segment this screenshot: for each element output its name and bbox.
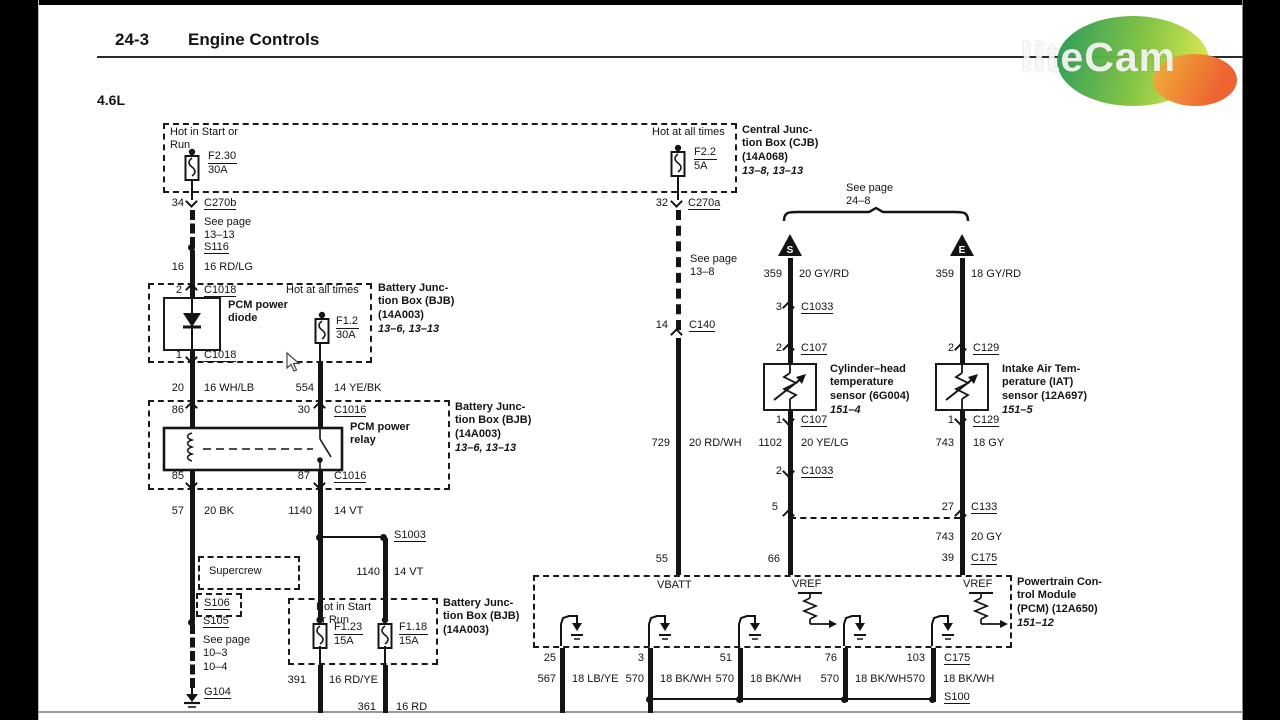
pcm-ground-icon: [736, 612, 764, 646]
pin-1: 1: [766, 414, 782, 427]
pcm-ground-icon: [929, 612, 957, 646]
pcm-ground-icon: [646, 612, 674, 646]
connector-name: C107: [801, 414, 827, 427]
fuse-name: F1.2: [336, 315, 359, 329]
wire-color-18gy: 18 GY: [973, 437, 1004, 450]
iat-sensor-label: Intake Air Tem- perature (IAT) sensor (1…: [1002, 363, 1087, 403]
engine-label: 4.6L: [97, 92, 125, 109]
see-page-24-8: See page 24–8: [846, 182, 893, 209]
pcm-power-diode-label: PCM power diode: [228, 299, 288, 326]
junction-dot: [841, 696, 848, 703]
see-page-13-8: See page 13–8: [690, 253, 737, 280]
circuit-361: 361: [342, 701, 376, 714]
connector-name: C129: [973, 414, 999, 427]
connector-name: C270a: [688, 197, 720, 210]
bjb2-pages: 13–6, 13–13: [455, 442, 516, 455]
cjb-box: [163, 123, 737, 193]
fuse-name: F1.23: [334, 621, 363, 635]
thermistor-icon: [935, 363, 989, 411]
ground-g104: G104: [204, 686, 231, 699]
wiring-diagram-page: 24-3 Engine Controls 4.6L liteCam Hot in…: [0, 0, 1280, 720]
connector-name: C1018: [204, 284, 236, 297]
connector-c129-top: C129: [973, 342, 999, 355]
pin-2: 2: [164, 284, 182, 297]
fuse-rating: 30A: [208, 164, 228, 176]
pin-103: 103: [891, 652, 925, 665]
connector-arrow-down: [670, 195, 683, 208]
pcm-label: Powertrain Con- trol Module (PCM) (12A65…: [1017, 576, 1102, 616]
wire-segment-dashed: [190, 210, 195, 247]
circuit-743b: 743: [920, 531, 954, 544]
wire-segment: [788, 411, 793, 575]
wire-color-20bk: 20 BK: [204, 505, 234, 518]
right-letterbox-bar: [1243, 0, 1280, 720]
page-right-edge: [1242, 0, 1243, 720]
connector-name: C1016: [334, 404, 366, 417]
fuse-f22-label: F2.2 5A: [694, 146, 717, 172]
junction-dot: [736, 696, 743, 703]
pcm-page: 151–12: [1017, 617, 1054, 630]
fuse-f123-label: F1.23 15A: [334, 621, 363, 647]
page-title: Engine Controls: [188, 30, 319, 51]
fuse-rating: 5A: [694, 160, 707, 172]
circuit-1102: 1102: [748, 437, 782, 450]
fuse-name: F2.2: [694, 146, 717, 160]
pin-1: 1: [938, 414, 954, 427]
circuit-570a: 570: [608, 673, 644, 686]
wire-color-16rd: 16 RD: [396, 701, 427, 714]
wire-segment: [676, 338, 681, 575]
cht-sensor-page: 151–4: [830, 404, 861, 417]
circuit-570b: 570: [698, 673, 734, 686]
circuit-570d: 570: [889, 673, 925, 686]
wire-segment: [843, 648, 848, 702]
fuse-name: F2.30: [208, 150, 237, 164]
connector-c1033-top: C1033: [801, 301, 833, 314]
pin-87: 87: [286, 470, 310, 483]
splice-s1003: S1003: [394, 529, 426, 542]
wire-segment: [190, 471, 195, 621]
pin-2: 2: [938, 342, 954, 355]
circuit-16: 16: [160, 261, 184, 274]
wire-segment: [318, 471, 323, 618]
pcm-vbatt-label: VBATT: [657, 579, 692, 592]
ground-name: G104: [204, 686, 231, 699]
circuit-57: 57: [160, 505, 184, 518]
connector-c1018-bottom: C1018: [204, 349, 236, 362]
fuse-f22-icon: [670, 144, 686, 178]
circuit-554: 554: [284, 382, 314, 395]
pcm-ground-icon: [841, 612, 869, 646]
pin-27: 27: [920, 501, 954, 514]
splice-s106: S106: [204, 597, 230, 610]
connector-name: C133: [971, 501, 997, 514]
wire-segment: [319, 646, 321, 665]
wire-color-20yelg: 20 YE/LG: [801, 437, 849, 450]
circuit-20: 20: [160, 382, 184, 395]
mouse-cursor: [286, 352, 300, 372]
wire-color-14vt-b: 14 VT: [394, 566, 423, 579]
splice-name: S105: [203, 615, 229, 628]
cjb-pages: 13–8, 13–13: [742, 165, 803, 178]
connector-c140: C140: [689, 319, 715, 332]
junction-dot: [646, 696, 653, 703]
arrow-letter-s: S: [783, 245, 797, 256]
pin-34: 34: [160, 197, 184, 210]
pin-85: 85: [164, 470, 184, 483]
connector-name: C107: [801, 342, 827, 355]
circuit-567: 567: [520, 673, 556, 686]
wire-segment-dashed: [190, 624, 195, 688]
cjb-left-condition: Hot in Start or Run: [170, 126, 238, 153]
fuse-rating: 15A: [399, 635, 419, 647]
connector-c175-top: C175: [971, 552, 997, 565]
connector-arrow-down: [185, 195, 198, 208]
connector-name: C1033: [801, 465, 833, 478]
circuit-743a: 743: [920, 437, 954, 450]
wire-segment: [560, 648, 565, 713]
splice-name: S100: [944, 691, 970, 704]
bjb2-label: Battery Junc- tion Box (BJB) (14A003): [455, 401, 531, 441]
iat-sensor-page: 151–5: [1002, 404, 1033, 417]
splice-name: S106: [204, 597, 230, 610]
pin-14: 14: [646, 319, 668, 332]
junction-dot: [929, 696, 936, 703]
s100-bus-line: [650, 698, 933, 700]
connector-name: C1018: [204, 349, 236, 362]
connector-name: C175: [971, 552, 997, 565]
connector-c107-top: C107: [801, 342, 827, 355]
pin-66: 66: [756, 553, 780, 566]
fuse-f230-icon: [184, 148, 200, 182]
pin-1: 1: [164, 349, 182, 362]
relay-icon: [163, 427, 343, 471]
fuse-name: F1.18: [399, 621, 428, 635]
bracket: [783, 206, 969, 222]
connector-c1016-top: C1016: [334, 404, 366, 417]
splice-s105: S105: [203, 615, 229, 628]
circuit-359: 359: [750, 268, 782, 281]
wire-color-20rdwh: 20 RD/WH: [689, 437, 742, 450]
left-letterbox-bar: [0, 0, 38, 720]
see-page-10: See page 10–3 10–4: [203, 634, 250, 674]
pin-76: 76: [805, 652, 837, 665]
fuse-f12-icon: [314, 311, 330, 345]
connector-name: C270b: [204, 197, 236, 210]
pin-25: 25: [524, 652, 556, 665]
wire-segment: [931, 648, 936, 702]
connector-c1018-top: C1018: [204, 284, 236, 297]
connector-name: C1033: [801, 301, 833, 314]
pin-30: 30: [286, 404, 310, 417]
wire-color-14vt: 14 VT: [334, 505, 363, 518]
thermistor-icon: [763, 363, 817, 411]
litecam-logo-text: liteCam: [1021, 34, 1235, 81]
supercrew-label: Supercrew: [209, 565, 262, 578]
bjb1-pages: 13–6, 13–13: [378, 323, 439, 336]
connector-c270b: C270b: [204, 197, 236, 210]
cjb-label: Central Junc- tion Box (CJB) (14A068): [742, 124, 818, 164]
page-left-edge: [38, 0, 39, 720]
arrow-letter-e: E: [955, 245, 969, 256]
connector-c1016-bottom: C1016: [334, 470, 366, 483]
splice-s116: S116: [204, 241, 229, 254]
pin-32: 32: [646, 197, 668, 210]
connector-name: C140: [689, 319, 715, 332]
wire-segment: [960, 411, 965, 575]
cht-sensor-label: Cylinder–head temperature sensor (6G004): [830, 363, 909, 403]
connector-name: C1016: [334, 470, 366, 483]
fuse-f12-label: F1.2 30A: [336, 315, 359, 341]
cjb-right-condition: Hot at all times: [652, 126, 725, 139]
pin-3: 3: [612, 652, 644, 665]
wire-segment: [384, 646, 386, 665]
connector-c1033-bottom: C1033: [801, 465, 833, 478]
wire-segment: [318, 665, 323, 713]
wire-color-18bkwh-d: 18 BK/WH: [943, 673, 994, 686]
fuse-f230-label: F2.30 30A: [208, 150, 237, 176]
connector-c107-bottom: C107: [801, 414, 827, 427]
top-letterbox-bar: [0, 0, 1280, 5]
wire-segment: [319, 343, 321, 363]
page-number: 24-3: [115, 30, 149, 51]
connector-c175-bottom: C175: [944, 652, 970, 665]
see-page-13-13: See page 13–13: [204, 216, 251, 243]
pin-3: 3: [766, 301, 782, 314]
circuit-729: 729: [642, 437, 670, 450]
splice-name: S1003: [394, 529, 426, 542]
wire-color-20gy: 20 GY: [971, 531, 1002, 544]
ground-icon: [183, 688, 201, 708]
connector-c133: C133: [971, 501, 997, 514]
vref-resistor-icon: [796, 590, 840, 630]
pin-2b: 2: [766, 465, 782, 478]
splice-name: S116: [204, 241, 229, 254]
wire-segment: [383, 665, 388, 713]
wire-segment-dashed: [676, 210, 681, 330]
junction-dot: [316, 534, 323, 541]
circuit-1140: 1140: [278, 505, 312, 518]
pin-5: 5: [762, 501, 778, 514]
pin-2: 2: [766, 342, 782, 355]
branch-line: [322, 536, 383, 538]
wire-color-18gyrd: 18 GY/RD: [971, 268, 1021, 281]
bjb1-condition: Hot at all times: [286, 284, 359, 297]
pin-86: 86: [164, 404, 184, 417]
connector-c129-bottom: C129: [973, 414, 999, 427]
wire-segment: [738, 648, 743, 702]
wire-color-20gyrd: 20 GY/RD: [799, 268, 849, 281]
circuit-1140b: 1140: [352, 566, 380, 579]
circuit-359b: 359: [922, 268, 954, 281]
splice-s100: S100: [944, 691, 970, 704]
pin-51: 51: [700, 652, 732, 665]
bjb3-label: Battery Junc- tion Box (BJB) (14A003): [443, 597, 519, 637]
dashed-link: [790, 517, 960, 519]
circuit-570c: 570: [803, 673, 839, 686]
connector-c270a: C270a: [688, 197, 720, 210]
wire-color-18bkwh-b: 18 BK/WH: [750, 673, 801, 686]
wire-color-16whlb: 16 WH/LB: [204, 382, 254, 395]
wire-color-14yebk: 14 YE/BK: [334, 382, 382, 395]
fuse-f118-icon: [377, 616, 393, 650]
diode-icon: [180, 297, 204, 351]
pcm-power-relay-label: PCM power relay: [350, 421, 410, 448]
pin-39: 39: [920, 552, 954, 565]
wire-segment: [648, 648, 653, 713]
connector-name: C129: [973, 342, 999, 355]
vref-resistor-icon: [967, 590, 1011, 630]
circuit-391: 391: [272, 674, 306, 687]
bjb1-label: Battery Junc- tion Box (BJB) (14A003): [378, 282, 454, 322]
fuse-rating: 15A: [334, 635, 354, 647]
fuse-f123-icon: [312, 616, 328, 650]
fuse-rating: 30A: [336, 329, 356, 341]
connector-name: C175: [944, 652, 970, 665]
pcm-ground-icon: [558, 612, 586, 646]
wire-color-16rdye: 16 RD/YE: [329, 674, 378, 687]
pin-55: 55: [644, 553, 668, 566]
page-bottom-edge: [38, 711, 1243, 713]
fuse-f118-label: F1.18 15A: [399, 621, 428, 647]
wire-color-16rdlg: 16 RD/LG: [204, 261, 253, 274]
litecam-watermark: liteCam: [1015, 8, 1240, 112]
